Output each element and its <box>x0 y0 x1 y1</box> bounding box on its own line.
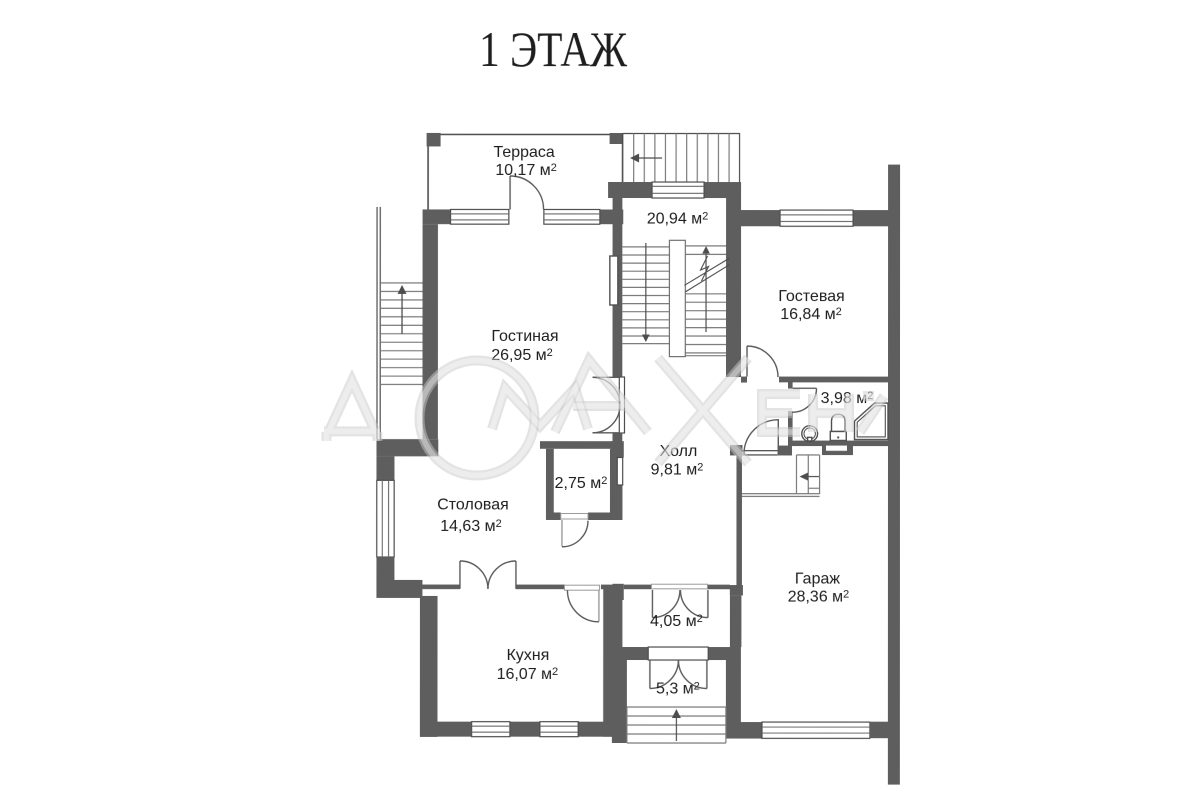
svg-text:2,75 м2: 2,75 м2 <box>555 475 608 492</box>
svg-text:4,05 м2: 4,05 м2 <box>650 613 703 630</box>
svg-text:Гараж: Гараж <box>795 571 840 588</box>
svg-text:28,36 м2: 28,36 м2 <box>788 589 850 606</box>
svg-text:Столовая: Столовая <box>437 496 509 513</box>
svg-text:9,81 м2: 9,81 м2 <box>651 462 704 479</box>
svg-text:1 ЭТАЖ: 1 ЭТАЖ <box>479 21 627 77</box>
svg-text:Гостевая: Гостевая <box>778 288 844 305</box>
svg-text:14,63 м2: 14,63 м2 <box>440 518 502 535</box>
svg-text:20,94 м2: 20,94 м2 <box>647 211 709 228</box>
svg-text:Кухня: Кухня <box>506 647 549 664</box>
svg-text:Гостиная: Гостиная <box>491 328 558 345</box>
svg-text:Терраса: Терраса <box>493 144 554 161</box>
svg-text:10,17 м2: 10,17 м2 <box>495 162 557 179</box>
svg-text:16,07 м2: 16,07 м2 <box>497 666 559 683</box>
svg-text:5,3 м2: 5,3 м2 <box>656 681 700 698</box>
svg-text:16,84 м2: 16,84 м2 <box>780 306 842 323</box>
